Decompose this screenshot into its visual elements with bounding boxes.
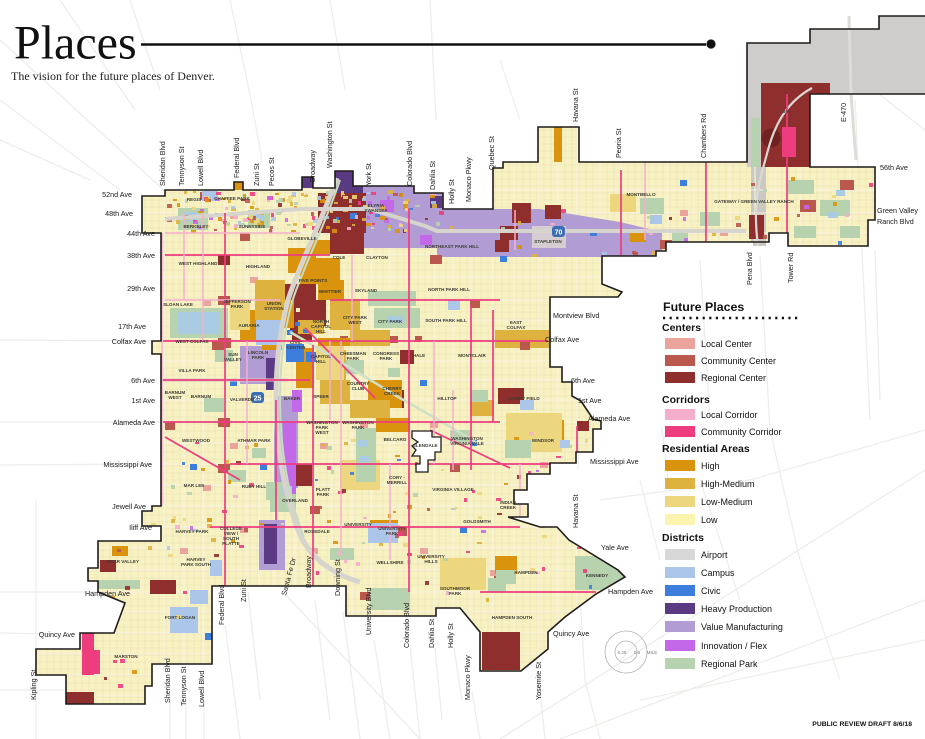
svg-text:INDIANCREEK: INDIANCREEK [500,500,517,510]
svg-text:Sheridan Blvd: Sheridan Blvd [163,658,172,703]
svg-text:Innovation / Flex: Innovation / Flex [701,641,768,651]
svg-text:56th Ave: 56th Ave [880,163,908,172]
svg-text:BARNUM: BARNUM [191,394,212,399]
svg-text:OVERLAND: OVERLAND [282,498,308,503]
svg-text:Quebec St: Quebec St [487,136,496,170]
svg-text:Iliff Ave: Iliff Ave [129,523,152,532]
svg-text:GOLDSMITH: GOLDSMITH [463,519,491,524]
svg-text:York St: York St [364,163,373,186]
svg-text:GATEWAY / GREEN VALLEY RANCH: GATEWAY / GREEN VALLEY RANCH [714,199,794,204]
svg-text:Ranch Blvd: Ranch Blvd [877,217,914,226]
svg-text:Dahlia St: Dahlia St [427,619,436,648]
svg-text:6th Ave: 6th Ave [131,376,155,385]
svg-text:Value Manufacturing: Value Manufacturing [701,622,783,632]
svg-text:17th Ave: 17th Ave [118,322,146,331]
svg-text:CHERRYCREEK: CHERRYCREEK [382,386,401,396]
svg-text:Civic: Civic [701,586,721,596]
svg-text:CITY PARK: CITY PARK [378,319,403,324]
svg-text:VILLA PARK: VILLA PARK [178,368,206,373]
svg-text:48th Ave: 48th Ave [105,209,133,218]
svg-text:BEAR VALLEY: BEAR VALLEY [107,559,139,564]
svg-text:UNIVERSITY: UNIVERSITY [344,522,372,527]
svg-text:BERKELEY: BERKELEY [183,224,208,229]
svg-text:Broadway: Broadway [304,556,313,588]
svg-text:Hampden Ave: Hampden Ave [608,587,653,596]
svg-text:BELCARO: BELCARO [384,437,407,442]
svg-text:Residential Areas: Residential Areas [662,443,750,455]
svg-text:WASHINGTONVIRGINIA VALE: WASHINGTONVIRGINIA VALE [450,436,483,446]
svg-text:SKYLAND: SKYLAND [355,288,378,293]
svg-text:Tennyson St: Tennyson St [177,146,186,186]
svg-text:Havana St: Havana St [571,88,580,122]
svg-text:1st Ave: 1st Ave [132,396,155,405]
svg-text:Holly St: Holly St [447,179,456,204]
svg-text:CHAFFEE PARK: CHAFFEE PARK [214,196,250,201]
svg-text:BAKER: BAKER [284,396,301,401]
svg-text:52nd Ave: 52nd Ave [102,190,132,199]
svg-text:HARVEY PARK: HARVEY PARK [176,529,210,534]
svg-text:Alameda Ave: Alameda Ave [113,418,155,427]
svg-text:Community Corridor: Community Corridor [701,427,782,437]
svg-text:High-Medium: High-Medium [701,479,755,489]
svg-text:MONTCLAIR: MONTCLAIR [458,353,486,358]
svg-text:Yosemite St: Yosemite St [534,662,543,700]
svg-text:Lowell Blvd: Lowell Blvd [197,671,206,707]
svg-text:SOUTH PARK HILL: SOUTH PARK HILL [425,318,467,323]
svg-text:Pena Blvd: Pena Blvd [745,252,754,285]
svg-text:VALVERDE: VALVERDE [230,397,254,402]
svg-text:Mississippi Ave: Mississippi Ave [103,460,152,469]
svg-text:HILLTOP: HILLTOP [437,396,456,401]
svg-text:MARSTON: MARSTON [114,654,138,659]
svg-text:AURARIA: AURARIA [238,323,260,328]
svg-text:COLE: COLE [333,255,346,260]
svg-text:SUNNYSIDE: SUNNYSIDE [239,224,266,229]
svg-text:SLOAN LAKE: SLOAN LAKE [163,302,193,307]
svg-text:UNIONSTATION: UNIONSTATION [264,301,284,311]
svg-text:29th Ave: 29th Ave [127,284,155,293]
svg-text:DIA: DIA [782,109,791,114]
svg-text:WELLSHIRE: WELLSHIRE [376,560,403,565]
svg-text:38th Ave: 38th Ave [127,251,155,260]
svg-text:6th Ave: 6th Ave [571,376,595,385]
svg-text:Jewell Ave: Jewell Ave [112,502,146,511]
svg-text:Campus: Campus [701,568,735,578]
svg-text:Sheridan Blvd: Sheridan Blvd [158,141,167,186]
svg-text:Colfax Ave: Colfax Ave [112,337,146,346]
svg-text:The vision for the future plac: The vision for the future places of Denv… [11,69,215,83]
svg-text:Hampden Ave: Hampden Ave [85,589,130,598]
svg-text:FORT LOGAN: FORT LOGAN [165,615,196,620]
svg-text:Corridors: Corridors [662,394,710,406]
svg-text:Monaco Pkwy: Monaco Pkwy [464,157,473,202]
svg-text:Community Center: Community Center [701,356,776,366]
svg-text:WEST COLFAX: WEST COLFAX [175,339,209,344]
svg-text:Peoria St: Peoria St [614,128,623,158]
svg-text:0.25: 0.25 [618,650,627,655]
svg-text:ATHMAR PARK: ATHMAR PARK [237,438,271,443]
svg-text:44th Ave: 44th Ave [127,229,155,238]
svg-text:Kipling St: Kipling St [29,670,38,700]
svg-text:Chambers Rd: Chambers Rd [699,114,708,158]
svg-text:Alameda Ave: Alameda Ave [588,414,630,423]
svg-text:HAMPDEN: HAMPDEN [514,570,538,575]
svg-text:GLENDALE: GLENDALE [412,443,437,448]
svg-text:REGIS: REGIS [187,197,201,202]
svg-text:E-470: E-470 [839,103,848,122]
svg-text:Washington St: Washington St [325,122,334,168]
svg-text:Heavy Production: Heavy Production [701,604,772,614]
svg-text:Centers: Centers [662,322,701,334]
svg-text:Zuni St: Zuni St [252,163,261,186]
svg-text:Green Valley: Green Valley [877,206,918,215]
svg-text:KENNEDY: KENNEDY [586,573,608,578]
svg-text:FIVE POINTS: FIVE POINTS [299,278,328,283]
svg-text:STAPLETON: STAPLETON [534,239,562,244]
svg-text:ROSEDALE: ROSEDALE [304,529,330,534]
svg-text:NORTH PARK HILL: NORTH PARK HILL [428,287,470,292]
svg-text:VIRGINIA VILLAGE: VIRGINIA VILLAGE [432,487,473,492]
svg-text:Quincy Ave: Quincy Ave [553,629,589,638]
svg-text:Colorado Blvd: Colorado Blvd [405,141,414,186]
svg-text:Low-Medium: Low-Medium [701,497,753,507]
svg-text:Regional Park: Regional Park [701,659,758,669]
svg-text:Colorado Blvd: Colorado Blvd [402,603,411,648]
svg-text:Broadway: Broadway [308,150,317,182]
svg-text:Regional Center: Regional Center [701,373,766,383]
svg-text:Colfax Ave: Colfax Ave [545,335,579,344]
svg-text:University Blvd: University Blvd [364,587,373,635]
svg-text:HIGHLAND: HIGHLAND [246,264,271,269]
svg-text:WINDSOR: WINDSOR [532,438,555,443]
svg-text:NORTHEAST PARK HILL: NORTHEAST PARK HILL [425,244,479,249]
svg-text:Monaco Pkwy: Monaco Pkwy [463,655,472,700]
svg-text:Holly St: Holly St [446,623,455,648]
svg-text:LOWRY FIELD: LOWRY FIELD [508,396,540,401]
svg-text:Low: Low [701,515,718,525]
svg-text:Places: Places [14,17,137,70]
svg-text:WEST HIGHLAND: WEST HIGHLAND [179,261,218,266]
svg-text:Havana St: Havana St [571,494,580,528]
svg-text:PLATTPARK: PLATTPARK [316,487,331,497]
svg-text:Zuni St: Zuni St [239,579,248,602]
svg-text:WHITTIER: WHITTIER [319,289,342,294]
svg-text:SPEER: SPEER [313,394,329,399]
svg-text:CORY -MERRILL: CORY -MERRILL [387,475,408,485]
svg-text:Dahlia St: Dahlia St [428,161,437,190]
svg-text:Mississippi Ave: Mississippi Ave [590,457,639,466]
svg-text:RUBY HILL: RUBY HILL [242,484,267,489]
svg-text:Federal Blvd: Federal Blvd [232,138,241,178]
svg-text:High: High [701,461,720,471]
svg-text:Downing St: Downing St [333,559,342,596]
svg-text:HAMPDEN SOUTH: HAMPDEN SOUTH [492,615,533,620]
svg-text:0.5: 0.5 [634,650,641,655]
svg-text:Airport: Airport [701,550,728,560]
svg-text:Federal Blvd: Federal Blvd [217,585,226,625]
svg-text:WESTWOOD: WESTWOOD [182,438,211,443]
svg-text:PUBLIC REVIEW DRAFT 8/6/18: PUBLIC REVIEW DRAFT 8/6/18 [812,721,912,728]
svg-text:Local Center: Local Center [701,339,752,349]
svg-text:Pecos St: Pecos St [267,157,276,186]
svg-text:COLLEGEVIEW /SOUTHPLATTE: COLLEGEVIEW /SOUTHPLATTE [220,526,242,546]
svg-text:Tennyson St: Tennyson St [179,666,188,706]
svg-text:MONTBELLO: MONTBELLO [626,192,656,197]
svg-text:Districts: Districts [662,532,704,544]
svg-text:Yale Ave: Yale Ave [601,543,629,552]
svg-text:25: 25 [254,396,262,403]
svg-text:MAR LEE: MAR LEE [184,483,205,488]
svg-text:Tower Rd: Tower Rd [786,253,795,283]
svg-text:70: 70 [555,230,563,237]
svg-text:1st Ave: 1st Ave [578,396,601,405]
svg-text:Montview Blvd: Montview Blvd [553,311,599,320]
svg-text:Local Corridor: Local Corridor [701,410,758,420]
svg-text:HALE: HALE [413,353,426,358]
svg-text:CLAYTON: CLAYTON [366,255,388,260]
svg-text:Quincy Ave: Quincy Ave [39,630,75,639]
svg-text:Lowell Blvd: Lowell Blvd [196,150,205,186]
svg-text:Future Places: Future Places [663,300,744,314]
svg-text:MILE: MILE [647,650,658,655]
svg-text:GLOBEVILLE: GLOBEVILLE [287,236,316,241]
